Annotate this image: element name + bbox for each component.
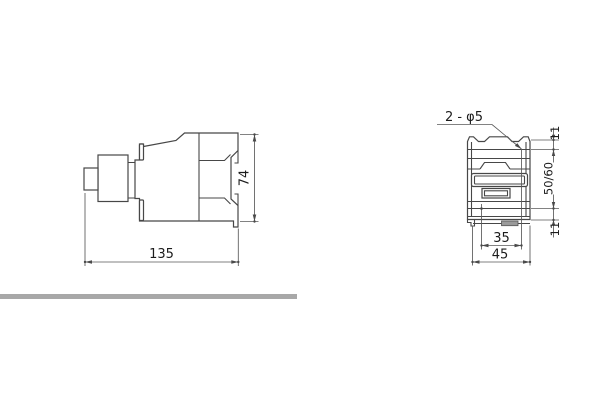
- dim-label-hole-spacing-35: 35: [493, 231, 510, 246]
- front-view-bottom-step: [468, 220, 531, 227]
- dim-label-bottom-offset-11: 11: [548, 222, 562, 237]
- dim-label-width-45: 45: [492, 248, 509, 263]
- front-view: [468, 137, 531, 226]
- side-view-coil-block: [98, 155, 128, 202]
- dim-label-hole-callout: 2 - φ5: [445, 110, 483, 125]
- front-view-din-clip: [502, 221, 519, 226]
- dim-label-vertical-spacing-50-60: 50/60: [542, 162, 556, 195]
- dim-label-width-135: 135: [149, 247, 174, 262]
- side-view: [84, 133, 238, 227]
- dim-label-top-offset-11: 11: [548, 126, 562, 141]
- dimension-drawing: 135 74 2 - φ5 35: [0, 0, 600, 400]
- side-view-top-tab: [140, 144, 144, 160]
- dim-label-height-74: 74: [238, 170, 253, 187]
- separator-bar: [0, 294, 297, 299]
- side-view-bottom-tab: [140, 200, 144, 221]
- side-view-button: [84, 168, 98, 190]
- front-view-small-slot: [482, 189, 510, 199]
- technical-drawing-page: 135 74 2 - φ5 35: [0, 0, 600, 400]
- side-view-outline: [135, 133, 238, 227]
